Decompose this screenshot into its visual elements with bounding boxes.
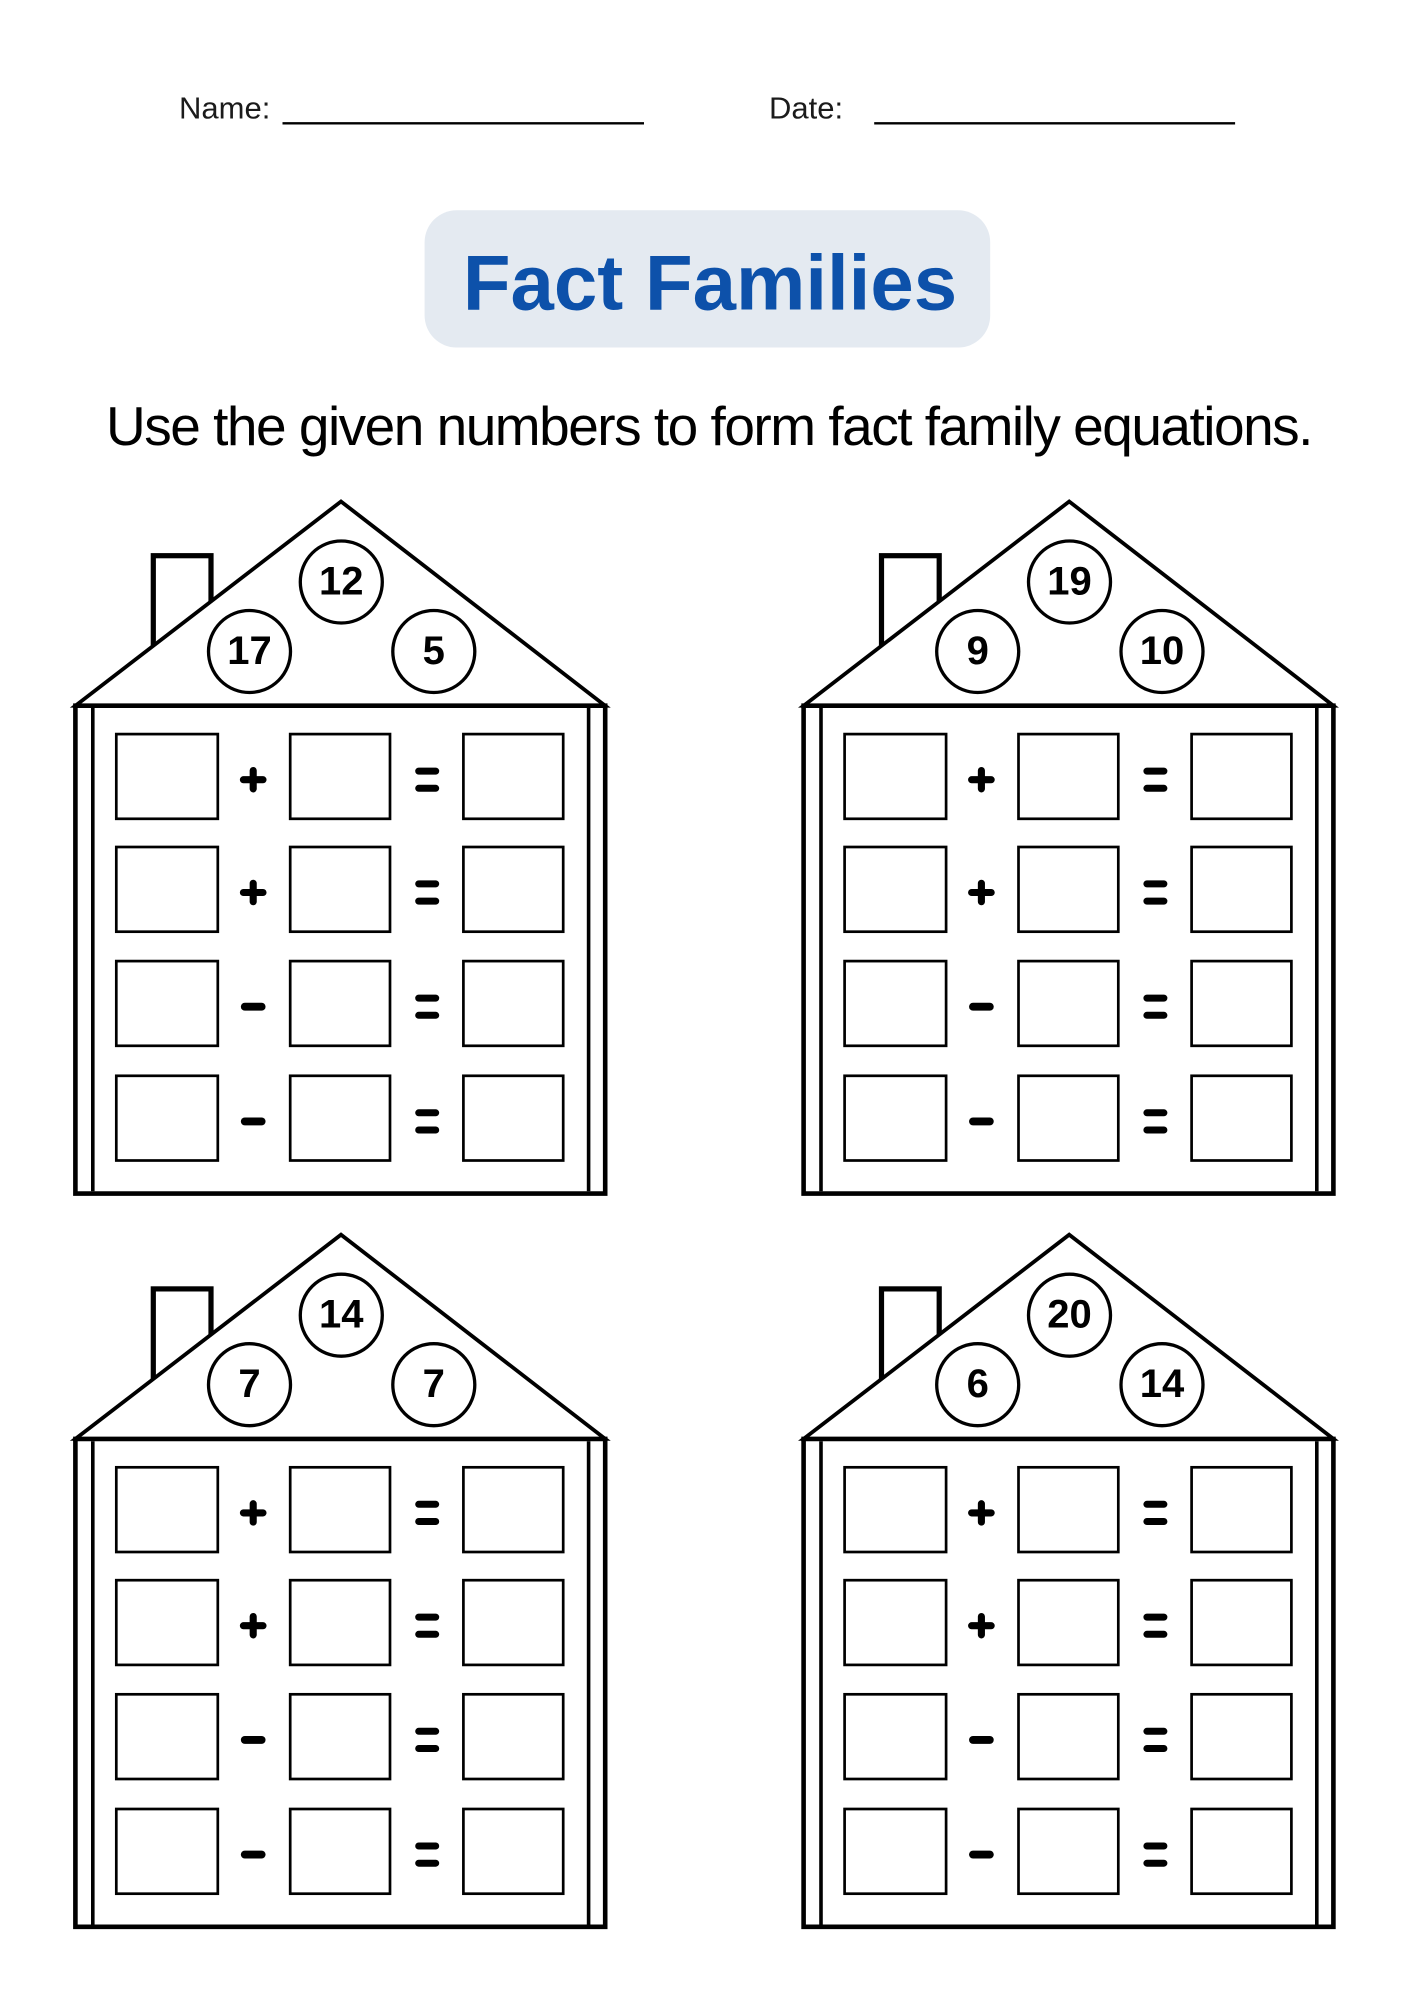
svg-text:10: 10 <box>1140 629 1185 673</box>
svg-text:17: 17 <box>227 629 272 673</box>
svg-text:14: 14 <box>1140 1362 1185 1406</box>
svg-text:14: 14 <box>319 1293 364 1337</box>
svg-text:7: 7 <box>238 1362 260 1406</box>
svg-text:Date:: Date: <box>769 91 843 126</box>
svg-text:Use the given numbers to form: Use the given numbers to form fact famil… <box>106 395 1312 457</box>
svg-text:Fact Families: Fact Families <box>463 239 957 327</box>
svg-text:19: 19 <box>1047 559 1092 603</box>
svg-text:Name:: Name: <box>179 91 270 126</box>
svg-text:9: 9 <box>967 629 989 673</box>
svg-text:12: 12 <box>319 559 364 603</box>
svg-text:6: 6 <box>967 1362 989 1406</box>
svg-text:20: 20 <box>1047 1293 1092 1337</box>
svg-text:7: 7 <box>423 1362 445 1406</box>
svg-text:5: 5 <box>423 629 445 673</box>
